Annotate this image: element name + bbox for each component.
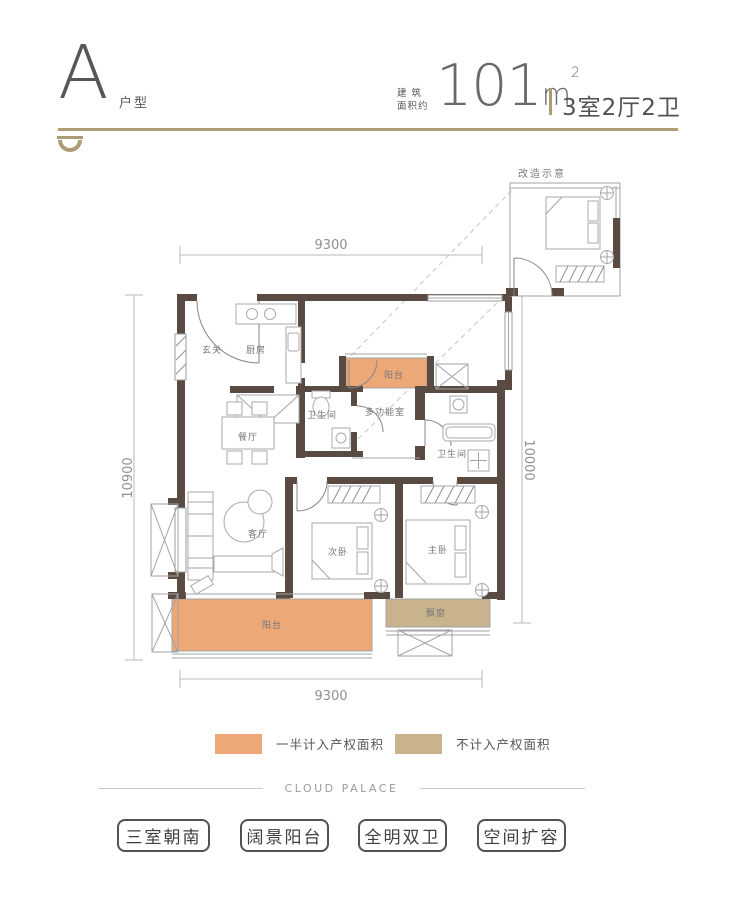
room-label-bath-right: 卫生间 bbox=[437, 448, 467, 460]
legend-item-not-counted: 不计入产权面积 bbox=[395, 733, 551, 754]
floorplan-flyer: A 户型 建 筑 面积约 101m2 3室2厅2卫 bbox=[0, 0, 740, 906]
dim-top: 9300 bbox=[314, 238, 347, 253]
brand-line-left bbox=[98, 788, 263, 789]
room-label-multi-room: 多功能室 bbox=[365, 406, 405, 418]
room-label-bedroom-master: 主卧 bbox=[428, 544, 448, 556]
tag-wide-balcony: 阔景阳台 bbox=[240, 819, 329, 852]
dim-left: 10900 bbox=[121, 457, 136, 498]
room-label-balcony-main: 阳台 bbox=[262, 619, 282, 631]
room-label-entry: 玄关 bbox=[202, 344, 222, 356]
renovation-inset: 改造示意 bbox=[506, 167, 620, 296]
room-label-living: 客厅 bbox=[248, 528, 268, 540]
room-label-kitchen: 厨房 bbox=[246, 344, 266, 356]
room-label-balcony-top: 阳台 bbox=[384, 369, 404, 381]
legend-label-no: 不计入产权面积 bbox=[456, 734, 551, 753]
brand-row: CLOUD PALACE bbox=[98, 782, 585, 795]
brand-name: CLOUD PALACE bbox=[285, 782, 399, 795]
room-label-bay-window: 飘窗 bbox=[426, 607, 446, 619]
dim-bottom: 9300 bbox=[314, 689, 347, 704]
floor-plan: 玄关 厨房 餐厅 卫生间 多功能室 阳台 卫生间 客厅 次卧 主卧 阳台 飘窗 … bbox=[0, 0, 740, 906]
brand-line-right bbox=[420, 788, 585, 789]
tag-three-rooms-south: 三室朝南 bbox=[117, 819, 210, 852]
tag-bright-double-bath: 全明双卫 bbox=[358, 819, 447, 852]
colored-zones bbox=[172, 358, 490, 651]
dim-right: 10000 bbox=[521, 439, 536, 480]
legend-item-half-counted: 一半计入产权面积 bbox=[215, 733, 384, 754]
legend-label-half: 一半计入产权面积 bbox=[276, 734, 384, 753]
legend-swatch-no-icon bbox=[395, 734, 442, 754]
inset-connector-lines bbox=[345, 190, 512, 445]
inset-title: 改造示意 bbox=[518, 167, 566, 180]
room-label-bath-left: 卫生间 bbox=[307, 409, 337, 421]
room-label-bedroom-second: 次卧 bbox=[328, 546, 348, 558]
room-label-dining: 餐厅 bbox=[238, 431, 258, 443]
legend-swatch-half-icon bbox=[215, 734, 262, 754]
tag-space-expansion: 空间扩容 bbox=[477, 819, 566, 852]
